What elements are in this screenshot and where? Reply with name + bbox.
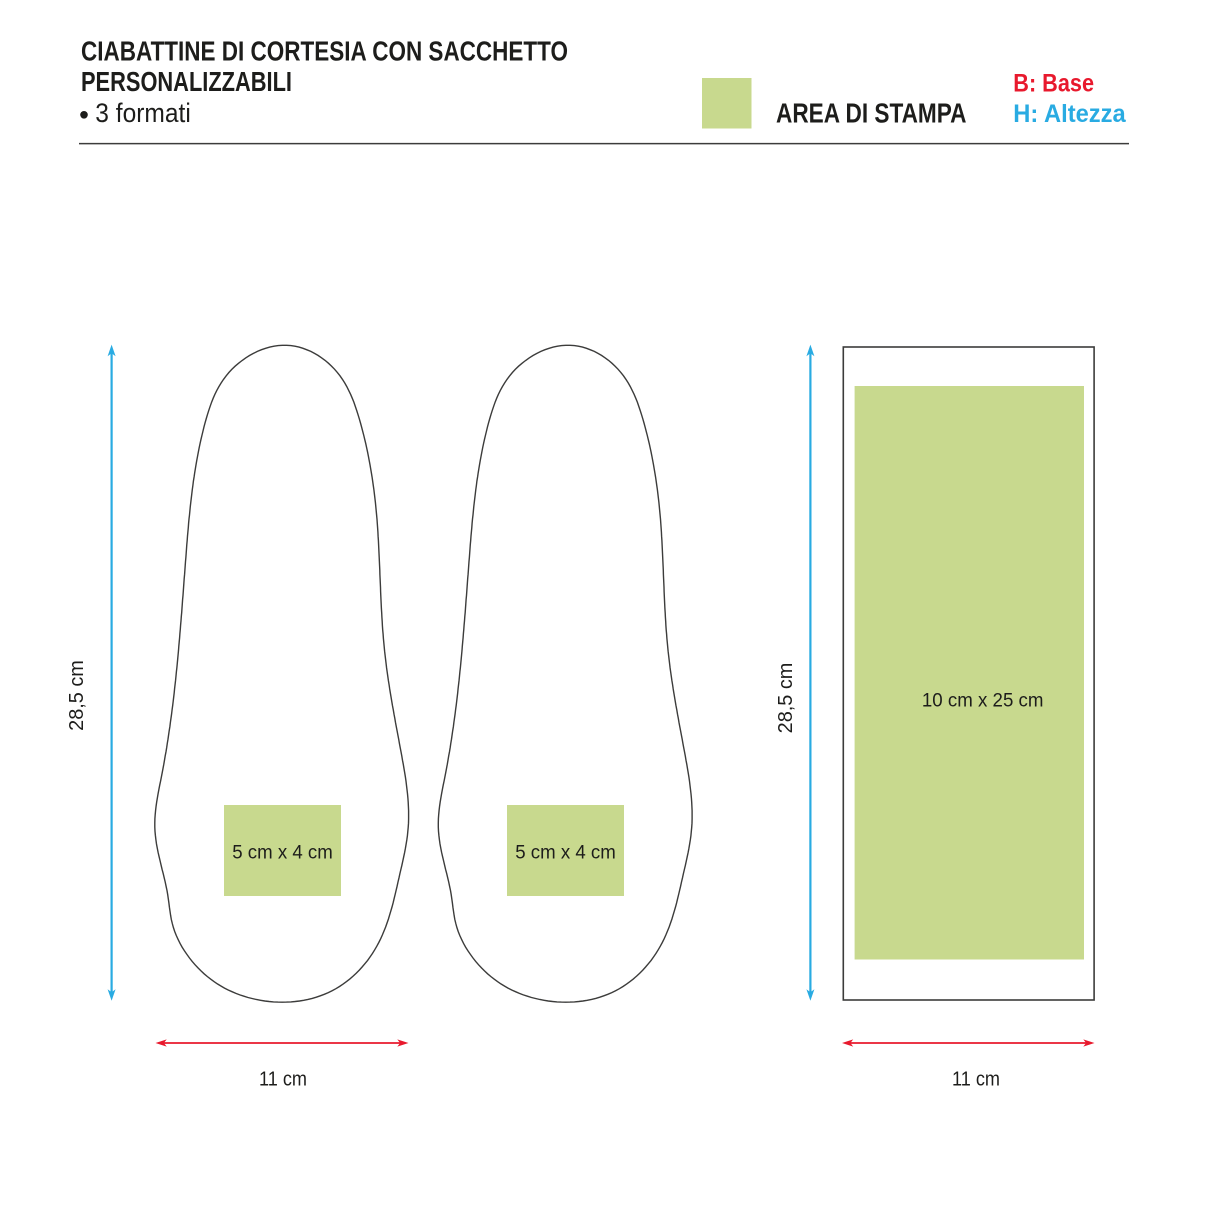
svg-text:11 cm: 11 cm <box>259 1069 307 1091</box>
svg-text:10 cm x 25 cm: 10 cm x 25 cm <box>922 690 1044 711</box>
svg-text:B: Base: B: Base <box>1013 69 1094 97</box>
svg-text:AREA DI STAMPA: AREA DI STAMPA <box>776 97 967 128</box>
svg-text:28,5 cm: 28,5 cm <box>775 663 797 734</box>
svg-text:H: Altezza: H: Altezza <box>1013 100 1126 128</box>
svg-text:28,5 cm: 28,5 cm <box>66 660 88 731</box>
svg-text:5 cm x 4 cm: 5 cm x 4 cm <box>515 842 616 863</box>
svg-text:PERSONALIZZABILI: PERSONALIZZABILI <box>81 66 292 97</box>
svg-text:5 cm x 4 cm: 5 cm x 4 cm <box>232 842 333 863</box>
svg-text:CIABATTINE DI CORTESIA CON SAC: CIABATTINE DI CORTESIA CON SACCHETTO <box>81 36 568 67</box>
svg-text:11 cm: 11 cm <box>952 1069 1000 1091</box>
svg-text:3 formati: 3 formati <box>95 98 191 128</box>
